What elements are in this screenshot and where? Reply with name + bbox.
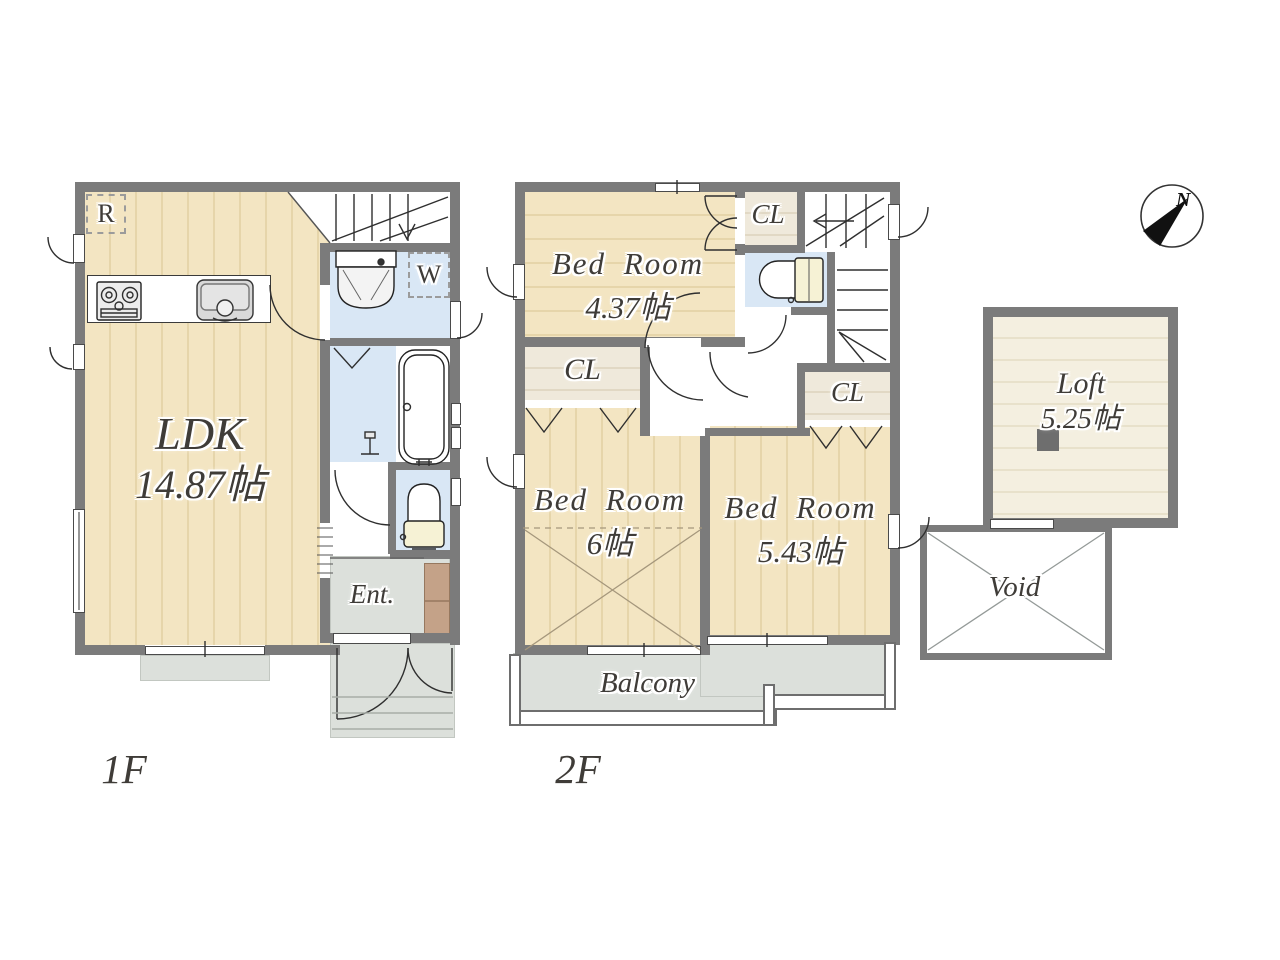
loft-hatch-opening bbox=[990, 519, 1054, 529]
window-bedroom-a-north bbox=[655, 183, 700, 192]
wall bbox=[330, 338, 450, 346]
wall bbox=[515, 337, 745, 347]
closet-b-label: CL bbox=[525, 354, 640, 386]
wall bbox=[320, 633, 333, 643]
door-opening bbox=[645, 338, 701, 347]
window-casement bbox=[888, 204, 900, 240]
hall-patch bbox=[650, 408, 706, 428]
balcony-rail bbox=[511, 710, 777, 726]
window-casement bbox=[73, 344, 85, 370]
wall bbox=[320, 578, 330, 633]
room-bedroom-c-floor bbox=[710, 426, 890, 635]
balcony-label: Balcony bbox=[555, 668, 740, 698]
refrigerator-label: R bbox=[97, 200, 114, 227]
closet-c-threshold bbox=[805, 420, 890, 427]
washer-label: W bbox=[417, 261, 442, 288]
bathtub-zone bbox=[396, 346, 450, 462]
loft-label: Loft bbox=[1000, 368, 1162, 400]
room-label-bedroom-a: Bed Room bbox=[518, 248, 738, 281]
room-area-ldk: 14.87帖 bbox=[55, 464, 345, 506]
window-ldk-south bbox=[145, 646, 265, 655]
window-tall bbox=[73, 509, 85, 613]
window-bedroom-c-south bbox=[707, 636, 828, 645]
room-toilet1-floor bbox=[396, 470, 450, 552]
balcony-rail-post bbox=[763, 684, 775, 726]
wall bbox=[515, 182, 900, 192]
washer-space: W bbox=[408, 252, 450, 298]
window-toilet1 bbox=[451, 478, 461, 506]
shoe-cabinet bbox=[424, 563, 450, 641]
kitchen-counter bbox=[87, 275, 271, 323]
void-label: Void bbox=[952, 572, 1077, 602]
wall bbox=[325, 243, 460, 252]
floor-plan-canvas: R W bbox=[0, 0, 1280, 960]
wall bbox=[410, 633, 460, 643]
wall bbox=[75, 645, 145, 655]
wall bbox=[265, 645, 340, 655]
window-casement bbox=[73, 234, 85, 263]
window-bath bbox=[451, 403, 461, 425]
door-opening bbox=[650, 427, 705, 436]
room-label-entrance: Ent. bbox=[332, 580, 412, 608]
room-area-bedroom-b: 6帖 bbox=[515, 528, 705, 561]
compass-north-label: N bbox=[1175, 189, 1192, 211]
terrace-pad bbox=[140, 655, 270, 681]
room-area-bedroom-c: 5.43帖 bbox=[703, 536, 898, 569]
wall bbox=[640, 428, 650, 436]
closet-b-threshold bbox=[525, 400, 640, 408]
balcony-rail-post bbox=[884, 642, 896, 710]
wall bbox=[75, 182, 460, 192]
closet-c-label: CL bbox=[805, 378, 890, 406]
wall bbox=[388, 470, 396, 554]
balcony-rail-post bbox=[509, 654, 521, 726]
floor1-title: 1F bbox=[84, 748, 164, 791]
porch-floor bbox=[330, 643, 455, 738]
room-label-ldk: LDK bbox=[75, 410, 325, 458]
door-arc-bedroom-b bbox=[648, 345, 703, 400]
wall bbox=[640, 345, 650, 436]
closet-a-label: CL bbox=[736, 200, 800, 228]
window-bath bbox=[451, 427, 461, 449]
casement-arcs-1f bbox=[48, 237, 74, 369]
door-opening bbox=[320, 523, 330, 578]
wall bbox=[388, 462, 460, 470]
wall bbox=[797, 363, 900, 372]
refrigerator-space: R bbox=[86, 194, 126, 234]
door-opening bbox=[320, 285, 330, 340]
wall bbox=[390, 550, 460, 559]
balcony-rail bbox=[766, 694, 896, 710]
room-label-bedroom-b: Bed Room bbox=[515, 484, 705, 517]
toilet2-threshold bbox=[741, 307, 791, 316]
window-washroom bbox=[450, 301, 461, 339]
wall bbox=[797, 372, 805, 428]
floor2-title: 2F bbox=[538, 748, 618, 791]
compass-icon: N bbox=[1141, 185, 1203, 247]
room-label-bedroom-c: Bed Room bbox=[703, 492, 898, 525]
window-bedroom-b-south bbox=[587, 646, 701, 655]
wall bbox=[790, 307, 835, 315]
wall bbox=[890, 192, 900, 645]
room-toilet2-floor bbox=[745, 252, 827, 307]
entrance-threshold bbox=[333, 633, 411, 644]
loft-area-label: 5.25帖 bbox=[1000, 404, 1162, 434]
room-area-bedroom-a: 4.37帖 bbox=[518, 292, 738, 325]
wall bbox=[705, 428, 810, 436]
wall bbox=[735, 245, 805, 253]
